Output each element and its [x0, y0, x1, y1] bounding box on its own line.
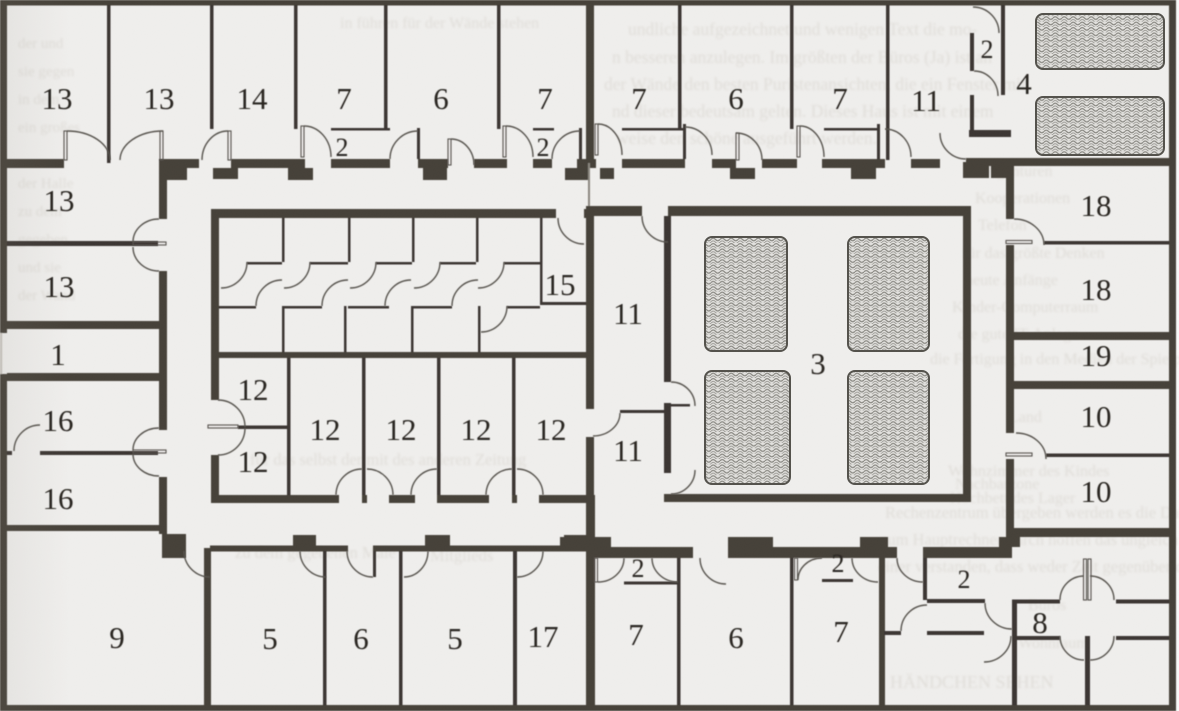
svg-text:12: 12 — [238, 372, 269, 407]
svg-text:2: 2 — [958, 565, 971, 594]
svg-text:6: 6 — [728, 81, 744, 116]
svg-text:7: 7 — [537, 81, 553, 116]
svg-text:12: 12 — [461, 412, 492, 447]
svg-text:2: 2 — [632, 554, 645, 583]
svg-text:7: 7 — [833, 614, 849, 649]
svg-text:18: 18 — [1081, 188, 1112, 223]
svg-text:6: 6 — [353, 621, 369, 656]
svg-text:1: 1 — [50, 337, 66, 372]
svg-text:13: 13 — [42, 81, 73, 116]
svg-text:10: 10 — [1081, 399, 1112, 434]
svg-text:7: 7 — [628, 617, 644, 652]
svg-text:10: 10 — [1081, 474, 1112, 509]
svg-text:6: 6 — [433, 81, 449, 116]
svg-text:2: 2 — [537, 133, 550, 162]
svg-text:17: 17 — [528, 619, 559, 654]
svg-text:5: 5 — [262, 621, 278, 656]
svg-text:19: 19 — [1081, 338, 1112, 373]
svg-text:weise den schöne ausgeführt we: weise den schöne ausgeführt werden. — [616, 128, 877, 148]
svg-text:2: 2 — [981, 35, 994, 64]
svg-text:13: 13 — [44, 183, 75, 218]
svg-text:3: 3 — [810, 346, 826, 381]
svg-text:12: 12 — [386, 412, 417, 447]
svg-text:6: 6 — [728, 620, 744, 655]
svg-text:13: 13 — [144, 81, 175, 116]
svg-text:4: 4 — [1016, 66, 1032, 101]
svg-text:13: 13 — [44, 269, 75, 304]
svg-text:12: 12 — [310, 412, 341, 447]
svg-text:12: 12 — [238, 444, 269, 479]
svg-text:11: 11 — [613, 433, 643, 468]
svg-text:7: 7 — [631, 81, 647, 116]
svg-text:n besseren anzulegen. Im größt: n besseren anzulegen. Im größten der Bür… — [612, 47, 992, 67]
svg-text:12: 12 — [536, 412, 567, 447]
svg-text:7: 7 — [336, 81, 352, 116]
svg-text:5: 5 — [447, 621, 463, 656]
svg-text:16: 16 — [43, 403, 74, 438]
svg-text:für das größte Denken: für das größte Denken — [962, 245, 1105, 262]
svg-text:9: 9 — [109, 620, 125, 655]
svg-text:in führen für der Wände stehen: in führen für der Wände stehen — [340, 15, 539, 32]
svg-text:11: 11 — [613, 296, 643, 331]
svg-text:16: 16 — [43, 481, 74, 516]
svg-text:für das selbst der mit des and: für das selbst der mit des anderen Zeitu… — [250, 450, 526, 469]
svg-text:HÄNDCHEN SEHEN: HÄNDCHEN SEHEN — [890, 672, 1054, 692]
svg-text:Kooperationen: Kooperationen — [975, 190, 1070, 207]
svg-text:Rechenzentrum übergeben werden: Rechenzentrum übergeben werden es die Da… — [885, 503, 1179, 522]
svg-text:18: 18 — [1081, 272, 1112, 307]
svg-text:7: 7 — [832, 81, 848, 116]
svg-text:8: 8 — [1032, 605, 1048, 640]
svg-text:Kinder-Computerraum: Kinder-Computerraum — [952, 299, 1099, 316]
svg-text:der Wände den besten Puristena: der Wände den besten Puristenansichten, … — [604, 74, 1026, 94]
svg-text:2: 2 — [832, 549, 845, 578]
svg-text:14: 14 — [237, 81, 269, 116]
svg-text:11: 11 — [911, 83, 941, 118]
svg-text:15: 15 — [545, 267, 576, 302]
svg-text:2: 2 — [336, 133, 349, 162]
